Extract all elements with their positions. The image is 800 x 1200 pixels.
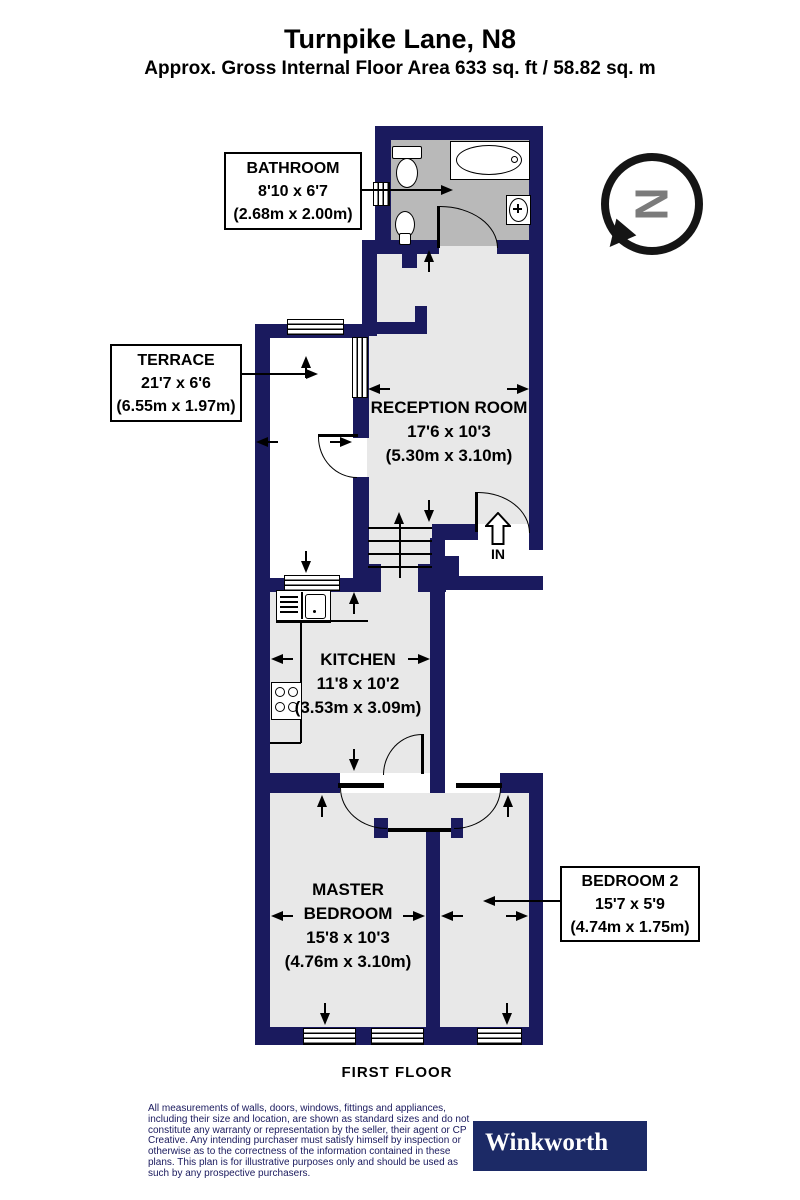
- dimension-tail: [507, 807, 509, 817]
- dimension-tail: [324, 1003, 326, 1013]
- dimension-arrow: [516, 911, 528, 921]
- room-name: RECEPTION ROOM: [358, 396, 540, 420]
- room-name: MASTER: [258, 878, 438, 902]
- wall: [402, 254, 417, 268]
- room-dims-m: (3.53m x 3.09m): [272, 696, 444, 720]
- dimension-arrow: [424, 510, 434, 522]
- wall: [375, 126, 543, 140]
- master-bedroom-label: MASTER BEDROOM 15'8 x 10'3 (4.76m x 3.10…: [258, 878, 438, 974]
- wall: [415, 306, 427, 322]
- dimension-tail: [453, 915, 463, 917]
- window: [303, 1028, 356, 1045]
- dimension-tail: [330, 441, 340, 443]
- leader-arrow: [441, 185, 453, 195]
- dimension-arrow: [256, 437, 268, 447]
- dimension-tail: [321, 807, 323, 817]
- leader-arrow: [483, 896, 495, 906]
- compass-north-letter: N: [625, 187, 679, 220]
- window: [371, 1028, 424, 1045]
- stair-direction-arrow: [394, 512, 404, 524]
- bedroom2-label: BEDROOM 2 15'7 x 5'9 (4.74m x 1.75m): [560, 866, 700, 942]
- bathroom-label: BATHROOM 8'10 x 6'7 (2.68m x 2.00m): [224, 152, 362, 230]
- wall: [362, 322, 427, 334]
- room-dims-ft: 21'7 x 6'6: [112, 372, 240, 395]
- window: [352, 337, 368, 398]
- leader-line: [237, 373, 306, 375]
- sink-bowl: [305, 594, 326, 619]
- wall: [432, 524, 478, 540]
- wall: [497, 240, 543, 254]
- leader-line: [495, 900, 562, 902]
- toilet-base: [399, 233, 411, 245]
- floorplan-page: Turnpike Lane, N8 Approx. Gross Internal…: [0, 0, 800, 1200]
- terrace-label: TERRACE 21'7 x 6'6 (6.55m x 1.97m): [110, 344, 242, 422]
- dimension-arrow: [424, 250, 434, 262]
- window: [477, 1028, 522, 1045]
- room-name: BEDROOM: [258, 902, 438, 926]
- wall: [529, 126, 543, 550]
- floor-plan: BATHROOM 8'10 x 6'7 (2.68m x 2.00m) TERR…: [0, 0, 800, 1100]
- drainer-line: [280, 606, 298, 608]
- toilet-bowl: [396, 158, 418, 188]
- dimension-arrow: [340, 437, 352, 447]
- room-dims-ft: 15'7 x 5'9: [562, 893, 698, 916]
- room-dims-m: (6.55m x 1.97m): [112, 395, 240, 418]
- sink-drain: [313, 610, 316, 613]
- reception-label: RECEPTION ROOM 17'6 x 10'3 (5.30m x 3.10…: [358, 396, 540, 468]
- window: [287, 319, 344, 335]
- bathtub-drain: [511, 156, 518, 163]
- entrance-arrow-icon: [485, 512, 511, 545]
- dimension-tail: [506, 915, 516, 917]
- dimension-tail: [506, 1003, 508, 1013]
- stair-direction-line: [399, 522, 401, 578]
- dimension-arrow: [503, 795, 513, 807]
- counter-edge: [276, 620, 368, 622]
- counter-edge: [270, 742, 301, 744]
- dimension-arrow: [349, 759, 359, 771]
- kitchen-label: KITCHEN 11'8 x 10'2 (3.53m x 3.09m): [272, 648, 444, 720]
- basin-tap: [517, 204, 519, 213]
- bedroom2-floor: [430, 786, 536, 1034]
- dimension-arrow: [441, 911, 453, 921]
- room-dims-m: (4.74m x 1.75m): [562, 916, 698, 939]
- dimension-arrow: [301, 356, 311, 368]
- dimension-tail: [380, 388, 390, 390]
- entrance-in-label: IN: [482, 546, 514, 562]
- dimension-arrow: [317, 795, 327, 807]
- basin-bowl: [509, 198, 528, 222]
- dimension-arrow: [349, 592, 359, 604]
- dimension-arrow: [517, 384, 529, 394]
- window: [284, 575, 340, 591]
- dimension-arrow: [502, 1013, 512, 1025]
- room-dims-ft: 17'6 x 10'3: [358, 420, 540, 444]
- dimension-tail: [507, 388, 517, 390]
- dimension-tail: [353, 749, 355, 759]
- dimension-arrow: [320, 1013, 330, 1025]
- wall: [255, 773, 340, 793]
- room-name: TERRACE: [112, 349, 240, 372]
- drainer-line: [280, 601, 298, 603]
- leader-line: [357, 189, 441, 191]
- room-dims-ft: 8'10 x 6'7: [226, 180, 360, 203]
- sink-divider: [301, 592, 303, 619]
- drainer-line: [280, 611, 298, 613]
- floor-caption: FIRST FLOOR: [297, 1064, 497, 1081]
- leader-arrow: [306, 369, 318, 379]
- room-name: KITCHEN: [272, 648, 444, 672]
- room-dims-m: (2.68m x 2.00m): [226, 203, 360, 226]
- drainer-line: [280, 596, 298, 598]
- brand-logo-text: Winkworth: [473, 1121, 647, 1157]
- door-bay-line: [388, 828, 451, 832]
- room-dims-ft: 15'8 x 10'3: [258, 926, 438, 950]
- room-dims-m: (5.30m x 3.10m): [358, 444, 540, 468]
- dimension-tail: [428, 262, 430, 272]
- wall: [353, 564, 381, 592]
- wall: [445, 576, 543, 590]
- dimension-tail: [428, 500, 430, 510]
- room-name: BATHROOM: [226, 157, 360, 180]
- dimension-tail: [305, 551, 307, 561]
- dimension-arrow: [301, 561, 311, 573]
- brand-logo: Winkworth: [473, 1121, 647, 1171]
- dimension-arrow: [368, 384, 380, 394]
- dimension-tail: [353, 604, 355, 614]
- room-name: BEDROOM 2: [562, 870, 698, 893]
- window: [373, 182, 390, 206]
- room-dims-m: (4.76m x 3.10m): [258, 950, 438, 974]
- room-dims-ft: 11'8 x 10'2: [272, 672, 444, 696]
- reception-floor: [367, 246, 536, 524]
- disclaimer-text: All measurements of walls, doors, window…: [148, 1104, 474, 1180]
- dimension-tail: [268, 441, 278, 443]
- wall: [529, 773, 543, 1045]
